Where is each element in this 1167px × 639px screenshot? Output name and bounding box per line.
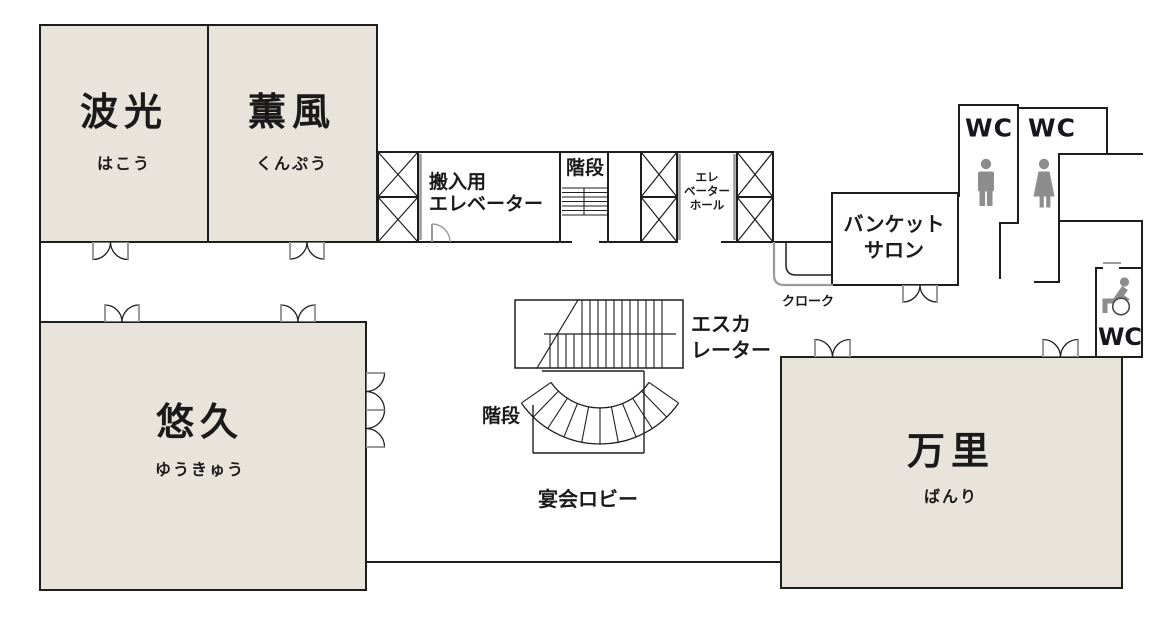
banquet-salon-label: バンケット サロン (844, 211, 945, 263)
wc-women-label: WC (1028, 115, 1076, 144)
escalator-symbol (515, 300, 683, 368)
room-yuukyuu-name: 悠久 (156, 401, 244, 445)
wc-men-label: WC (965, 115, 1013, 144)
wheelchair-icon (1105, 277, 1129, 314)
room-hakou-name: 波光 (80, 91, 168, 135)
stairs-upper-label: 階段 (566, 158, 604, 180)
room-kunpuu-reading: くんぷう (256, 155, 328, 173)
floorplan-drawing (0, 0, 1167, 639)
room-hakou-reading: はこう (97, 155, 151, 173)
room-kunpuu-name: 薫風 (248, 91, 336, 135)
woman-icon (1034, 159, 1055, 208)
elevator-hall-label: エレ ベーター ホール (684, 170, 730, 212)
wc-accessible-label: WC (1098, 324, 1142, 352)
cloak-counter (774, 242, 833, 285)
service-elevator-label: 搬入用 エレベーター (429, 172, 543, 216)
banquet-lobby-label: 宴会ロビー (538, 486, 638, 512)
room-banri-name: 万里 (907, 430, 995, 474)
escalator-label: エスカ レーター (691, 311, 771, 363)
stairs-upper-treads (562, 188, 607, 215)
room-yuukyuu (40, 322, 366, 590)
room-banri-reading: ばんり (924, 488, 978, 506)
cloak-label: クローク (782, 296, 834, 311)
stairs-curved-label: 階段 (482, 406, 520, 428)
room-yuukyuu-reading: ゆうきゅう (155, 461, 245, 479)
stairs-curved-symbol (521, 371, 678, 453)
man-icon (978, 159, 994, 206)
floorplan: 波光 はこう 薫風 くんぷう 悠久 ゆうきゅう 万里 ばんり 搬入用 エレベータ… (0, 0, 1167, 639)
